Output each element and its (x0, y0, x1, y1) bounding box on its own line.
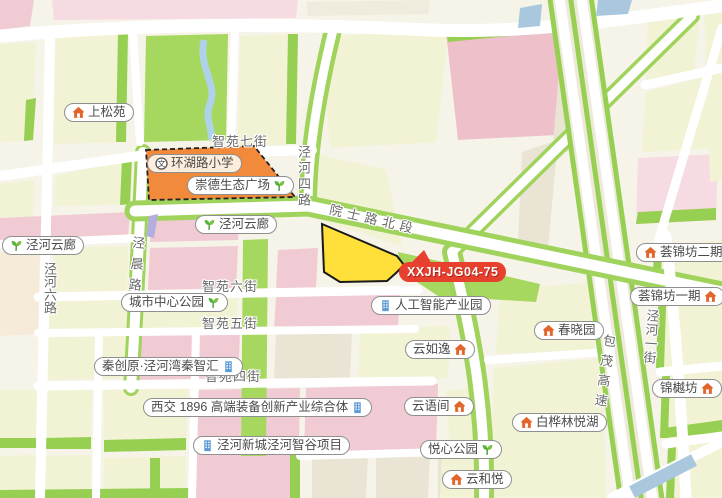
road-label-jinghe-4th-rd: 泾河四路 (294, 145, 313, 209)
poi-jinyuefang[interactable]: 锦樾坊 (652, 379, 722, 398)
poi-label: 泾河云廊 (219, 216, 269, 233)
park-icon (203, 218, 216, 231)
map-canvas[interactable]: 文 (0, 0, 722, 498)
house-icon (701, 382, 714, 395)
road-label-jinghe-1st-st: 泾河一街 (639, 308, 662, 365)
park-icon (481, 443, 494, 456)
poi-label: 上松苑 (88, 104, 126, 121)
house-icon (704, 290, 717, 303)
poi-baihualin-yuehu[interactable]: 白桦林悦湖 (512, 413, 607, 432)
poi-label: 云语间 (412, 398, 450, 415)
poi-label: 锦樾坊 (660, 380, 698, 397)
poi-qinchuangyuan-jinghewan[interactable]: 秦创原·泾河湾秦智汇 (94, 357, 243, 376)
road-label-jinghe-6th-rd: 泾河六路 (40, 262, 59, 314)
house-icon (454, 343, 467, 356)
building-icon (379, 299, 392, 312)
poi-label: 春晓园 (558, 322, 596, 339)
poi-huanhulu-primary-school[interactable]: 环湖路小学 (147, 154, 242, 173)
poi-yunruyi[interactable]: 云如逸 (405, 340, 475, 359)
poi-huijinfang-phase-1[interactable]: 荟锦坊一期 (630, 287, 722, 306)
poi-label: 人工智能产业园 (395, 297, 483, 314)
poi-shangsongyuan[interactable]: 上松苑 (64, 103, 134, 122)
poi-label: 城市中心公园 (129, 294, 204, 311)
house-icon (542, 324, 555, 337)
park-icon (10, 239, 23, 252)
poi-label: 荟锦坊一期 (638, 288, 701, 305)
house-icon (72, 106, 85, 119)
house-icon (450, 473, 463, 486)
poi-chongde-eco-plaza[interactable]: 崇德生态广场 (187, 176, 294, 195)
house-icon (644, 246, 657, 259)
poi-label: 崇德生态广场 (195, 177, 270, 194)
poi-jinghe-cloud-corridor-west[interactable]: 泾河云廊 (2, 236, 84, 255)
poi-label: 荟锦坊二期 (660, 244, 722, 261)
road-label-zhiyuan-7th-st: 智苑七街 (212, 131, 268, 150)
poi-label: 环湖路小学 (171, 155, 234, 172)
park-icon (273, 179, 286, 192)
school-icon (155, 157, 168, 170)
building-icon (351, 401, 364, 414)
poi-yuexin-park[interactable]: 悦心公园 (420, 440, 502, 459)
poi-label: 泾河新城泾河智谷项目 (217, 437, 342, 454)
house-icon (453, 400, 466, 413)
poi-label: 云如逸 (413, 341, 451, 358)
poi-label: 泾河云廊 (26, 237, 76, 254)
building-icon (222, 360, 235, 373)
poi-yunheyue[interactable]: 云和悦 (442, 470, 512, 489)
poi-huijinfang-phase-2[interactable]: 荟锦坊二期 (636, 243, 722, 262)
poi-city-central-park[interactable]: 城市中心公园 (121, 293, 228, 312)
park-icon (207, 296, 220, 309)
building-icon (201, 439, 214, 452)
poi-chunxiaoyuan[interactable]: 春晓园 (534, 321, 604, 340)
map-viewport[interactable]: 文 (0, 0, 722, 498)
poi-label: 云和悦 (466, 471, 504, 488)
poi-jinghe-smart-valley-project[interactable]: 泾河新城泾河智谷项目 (193, 436, 350, 455)
poi-label: 西交 1896 高端装备创新产业综合体 (151, 399, 348, 416)
poi-yunyujian[interactable]: 云语间 (404, 397, 474, 416)
poi-label: 悦心公园 (428, 441, 478, 458)
poi-ai-industrial-park[interactable]: 人工智能产业园 (371, 296, 491, 315)
poi-xjtu-1896-industry-complex[interactable]: 西交 1896 高端装备创新产业综合体 (143, 398, 372, 417)
house-icon (520, 416, 533, 429)
parcel-code-badge[interactable]: XXJH-JG04-75 (399, 262, 506, 282)
poi-label: 秦创原·泾河湾秦智汇 (102, 358, 219, 375)
poi-jinghe-cloud-corridor-east[interactable]: 泾河云廊 (195, 215, 277, 234)
poi-label: 白桦林悦湖 (536, 414, 599, 431)
road-label-zhiyuan-5th-st: 智苑五街 (202, 313, 258, 332)
